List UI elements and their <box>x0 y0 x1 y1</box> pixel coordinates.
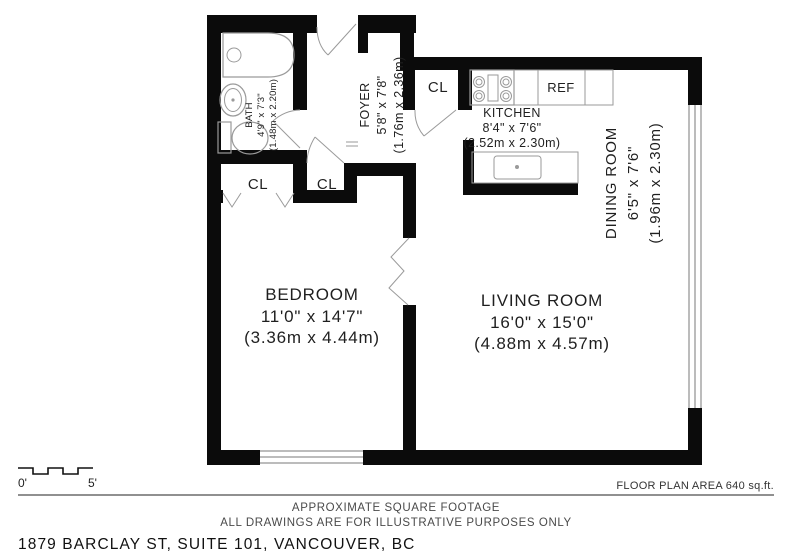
kitchen-closet-door-swing <box>415 110 456 136</box>
kitchen-sink-icon <box>472 152 578 183</box>
dining-name: DINING ROOM <box>603 127 620 239</box>
right-wall-window <box>689 105 701 408</box>
living-dims-ft: 16'0" x 15'0" <box>490 313 594 332</box>
floor-plan-page: REF BATH 4'9" x 7'3" (1.48m x 2.20m) FOY… <box>0 0 792 560</box>
footnote-approximate: APPROXIMATE SQUARE FOOTAGE <box>292 502 500 514</box>
scale-end-label: 5' <box>88 476 97 490</box>
bath-name: BATH <box>244 102 255 127</box>
bedroom-window <box>260 451 363 463</box>
closet-door-swing-foyer <box>307 137 358 163</box>
bathroom-sink-icon <box>220 84 246 116</box>
bedroom-accordion-door <box>389 238 409 305</box>
address-line: 1879 BARCLAY ST, SUITE 101, VANCOUVER, B… <box>18 536 415 553</box>
closet-label-bedroom: CL <box>248 176 268 193</box>
bath-dims-ft: 4'9" x 7'3" <box>256 93 267 137</box>
room-label-bath: BATH 4'9" x 7'3" (1.48m x 2.20m) <box>244 79 279 151</box>
fridge: REF <box>538 70 585 105</box>
dining-dims-ft: 6'5" x 7'6" <box>625 146 642 220</box>
bedroom-dims-ft: 11'0" x 14'7" <box>261 307 363 326</box>
bathtub-icon <box>223 33 294 77</box>
kitchen-dims-m: (2.52m x 2.30m) <box>463 136 560 150</box>
floor-plan-area-note: FLOOR PLAN AREA 640 sq.ft. <box>616 480 774 492</box>
entry-door-swing <box>317 24 356 55</box>
kitchen-dims-ft: 8'4" x 7'6" <box>482 121 541 135</box>
living-dims-m: (4.88m x 4.57m) <box>474 334 610 353</box>
room-label-kitchen: KITCHEN 8'4" x 7'6" (2.52m x 2.30m) <box>463 106 560 150</box>
footnote-illustrative: ALL DRAWINGS ARE FOR ILLUSTRATIVE PURPOS… <box>220 517 572 529</box>
bath-dims-m: (1.48m x 2.20m) <box>268 79 279 151</box>
dining-dims-m: (1.96m x 2.30m) <box>647 122 664 243</box>
foyer-dims-m: (1.76m x 2.36m) <box>392 56 406 153</box>
foyer-name: FOYER <box>358 82 372 127</box>
fridge-label: REF <box>547 80 575 95</box>
foyer-dims-ft: 5'8" x 7'8" <box>375 75 389 134</box>
room-label-foyer: FOYER 5'8" x 7'8" (1.76m x 2.36m) <box>358 56 406 153</box>
room-label-living: LIVING ROOM 16'0" x 15'0" (4.88m x 4.57m… <box>474 291 610 353</box>
room-label-bedroom: BEDROOM 11'0" x 14'7" (3.36m x 4.44m) <box>244 285 380 347</box>
bedroom-closet-bifold-doors <box>223 193 294 207</box>
kitchen-name: KITCHEN <box>483 106 541 120</box>
bedroom-name: BEDROOM <box>265 285 358 304</box>
closet-label-foyer: CL <box>317 176 337 193</box>
living-name: LIVING ROOM <box>481 291 603 310</box>
scale-bar: 0' 5' <box>18 468 97 490</box>
stove-icon <box>470 70 514 105</box>
scale-start-label: 0' <box>18 476 27 490</box>
walls <box>207 15 702 465</box>
closet-label-kitchen: CL <box>428 79 448 96</box>
floor-plan-drawing: REF BATH 4'9" x 7'3" (1.48m x 2.20m) FOY… <box>0 0 792 560</box>
room-label-dining: DINING ROOM 6'5" x 7'6" (1.96m x 2.30m) <box>603 122 664 243</box>
bedroom-dims-m: (3.36m x 4.44m) <box>244 328 380 347</box>
